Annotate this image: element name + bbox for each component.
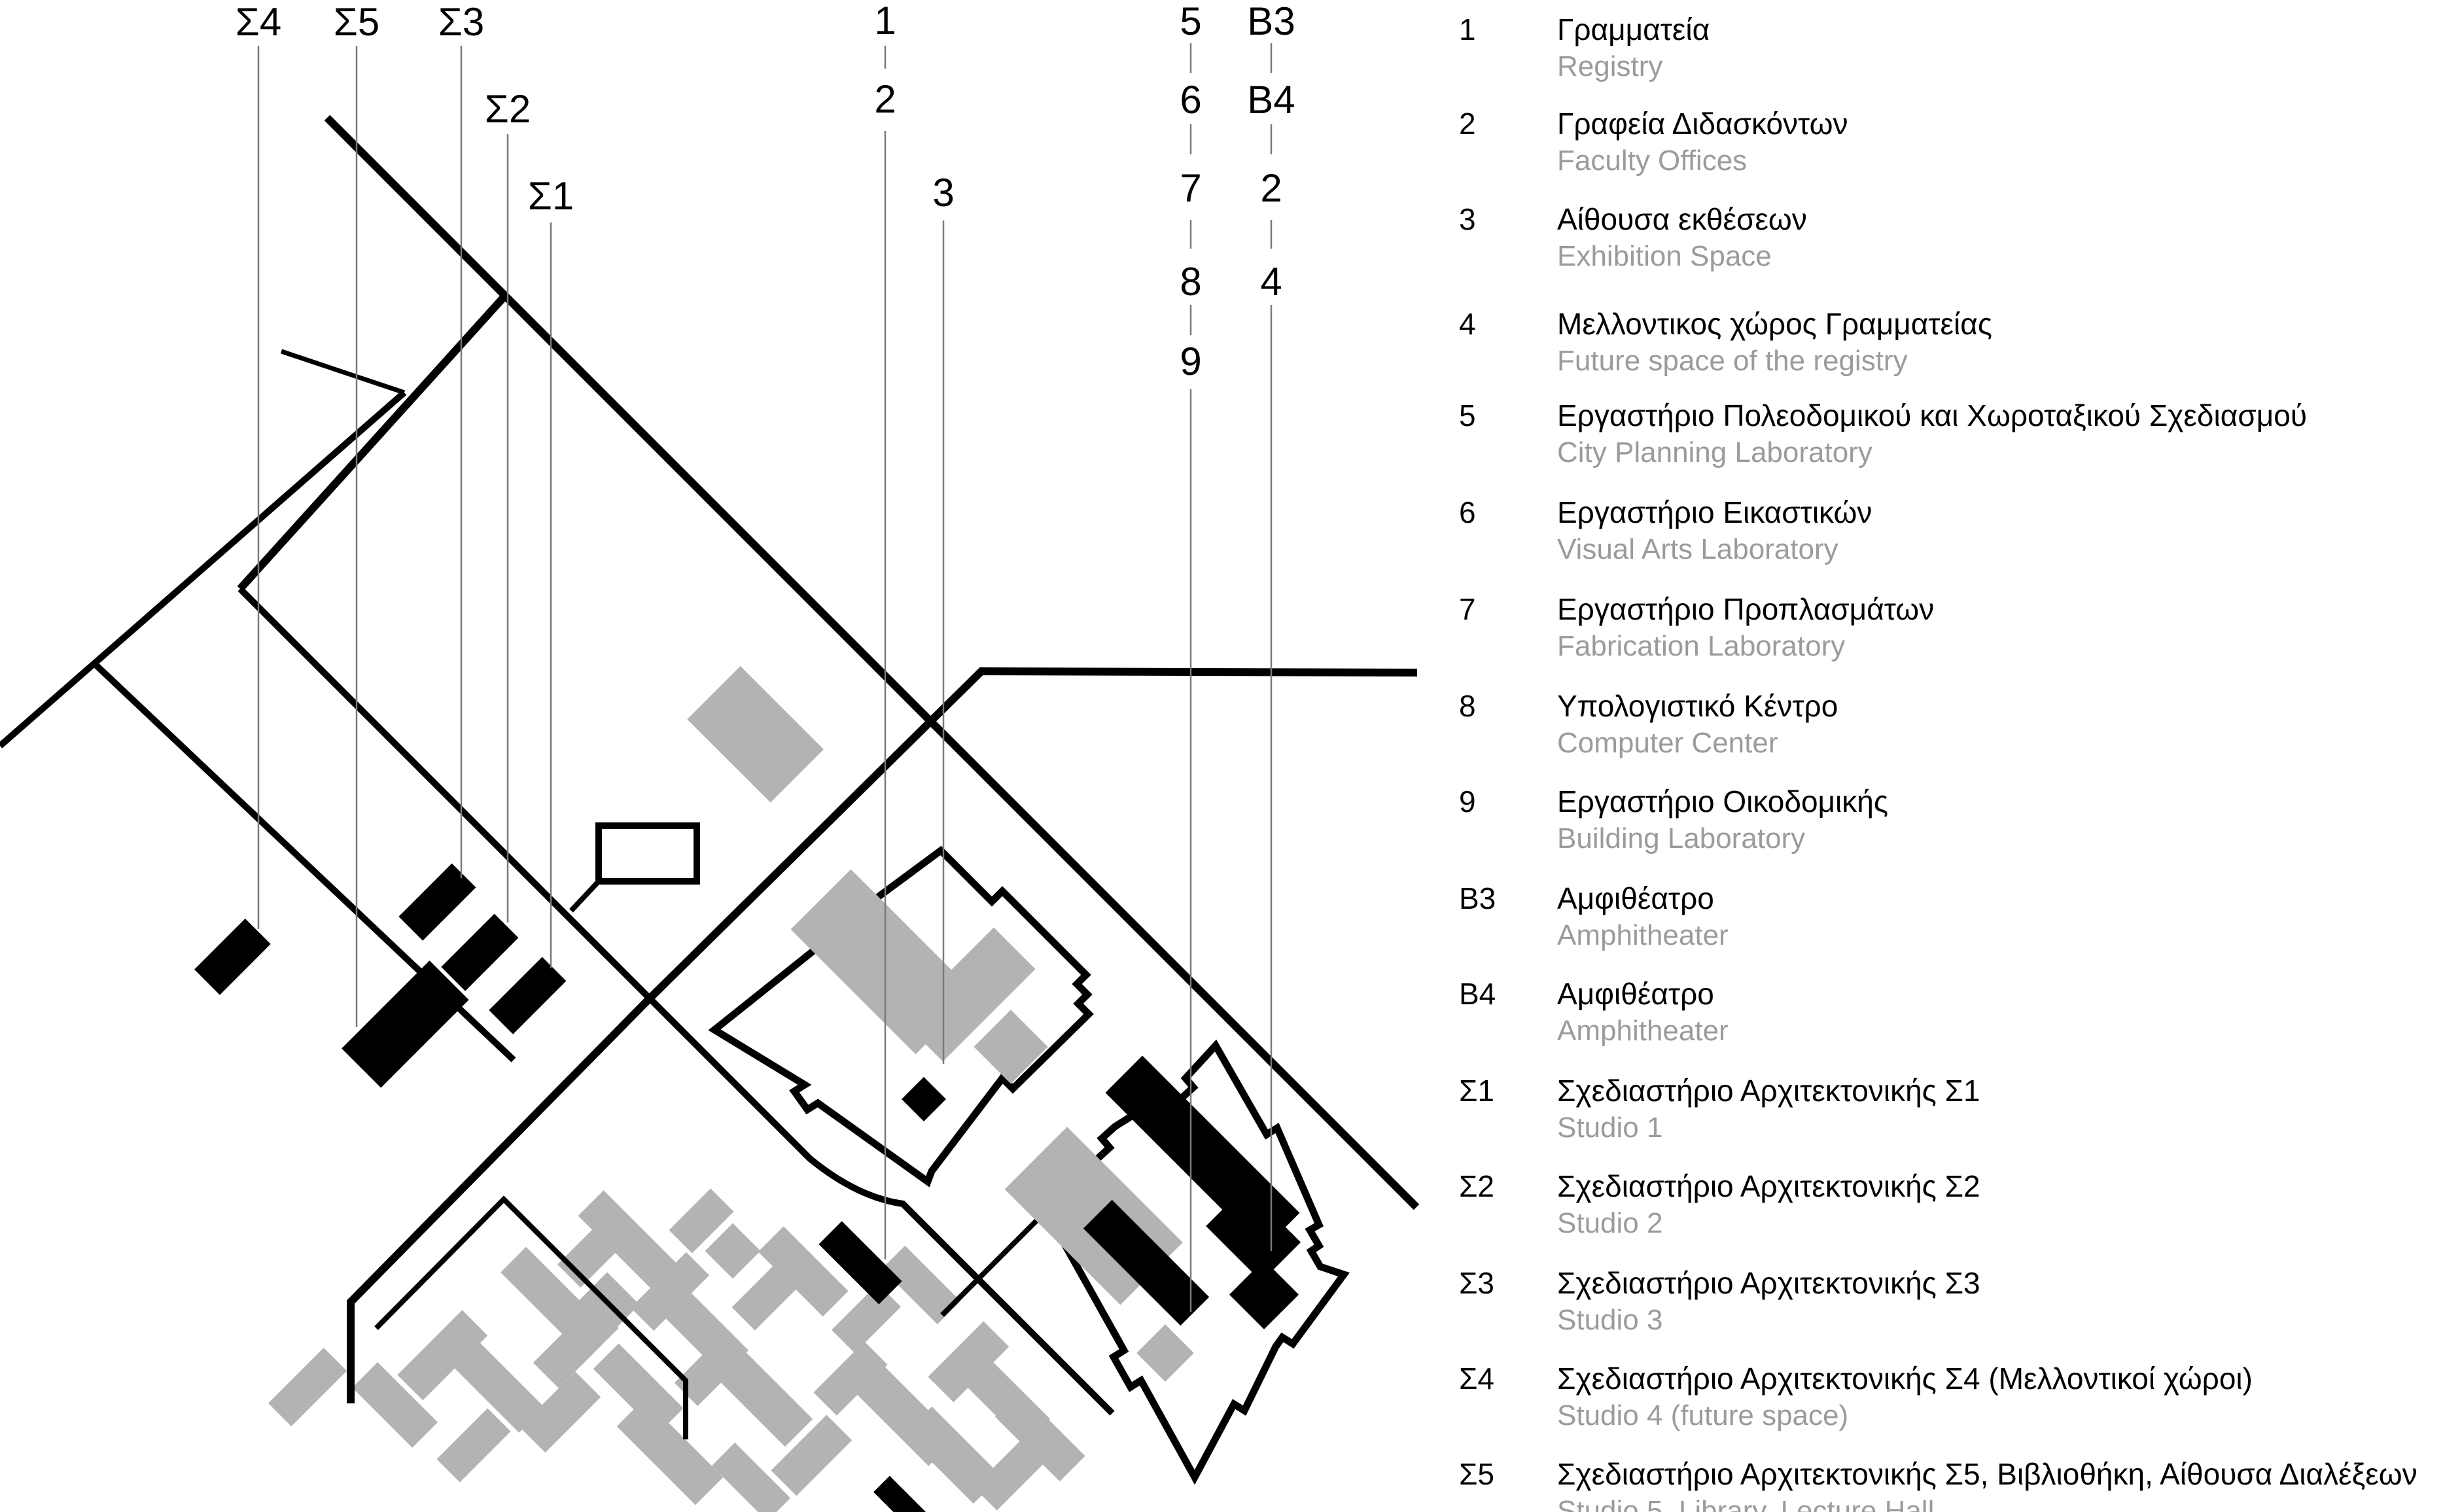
legend-number: 6 [1459,495,1557,530]
legend-item-8: 8 Υπολογιστικό ΚέντροComputer Center [1459,688,1838,760]
outlined-rect-building [599,826,697,881]
legend-english-label: Amphitheater [1557,919,1729,953]
legend-greek-label: Σχεδιαστήριο Αρχιτεκτονικής Σ1 [1557,1073,1980,1108]
legend-number: 1 [1459,12,1557,47]
legend-item-9: 9 Εργαστήριο ΟικοδομικήςBuilding Laborat… [1459,784,1888,856]
legend-item-7: 7 Εργαστήριο ΠροπλασμάτωνFabrication Lab… [1459,591,1934,663]
legend-english-label: Fabrication Laboratory [1557,629,1934,663]
legend-greek-label: Εργαστήριο Προπλασμάτων [1557,591,1934,627]
legend-number: Σ5 [1459,1456,1557,1492]
legend-item-s3: Σ3 Σχεδιαστήριο Αρχιτεκτονικής Σ3Studio … [1459,1265,1980,1337]
legend-item-5: 5 Εργαστήριο Πολεοδομικού και Χωροταξικο… [1459,398,2307,470]
legend-greek-label: Σχεδιαστήριο Αρχιτεκτονικής Σ2 [1557,1169,1980,1204]
legend-item-2: 2 Γραφεία ΔιδασκόντωνFaculty Offices [1459,106,1848,178]
map-label-sigma3: Σ3 [438,0,484,44]
legend-number: 2 [1459,106,1557,141]
legend-item-6: 6 Εργαστήριο ΕικαστικώνVisual Arts Labor… [1459,495,1872,567]
legend-item-4: 4 Μελλοντικος χώρος ΓραμματείαςFuture sp… [1459,306,1992,378]
map-label-b3: B3 [1247,0,1295,43]
legend-number: B4 [1459,976,1557,1011]
map-label-6: 6 [1180,78,1201,122]
studio-sigma2-footprint [441,914,518,991]
legend-greek-label: Υπολογιστικό Κέντρο [1557,688,1838,724]
legend-number: 8 [1459,688,1557,724]
legend: 1 ΓραμματείαRegistry 2 Γραφεία Διδασκόντ… [1459,0,2443,1512]
legend-english-label: Computer Center [1557,726,1838,760]
map-label-4: 4 [1260,260,1282,304]
legend-item-1: 1 ΓραμματείαRegistry [1459,12,1710,84]
legend-english-label: Visual Arts Laboratory [1557,533,1872,567]
legend-english-label: Faculty Offices [1557,144,1848,178]
legend-number: Σ1 [1459,1073,1557,1108]
legend-number: 3 [1459,202,1557,237]
building-footprint-gray [268,1348,347,1426]
map-label-9: 9 [1180,340,1201,383]
legend-greek-label: Γραφεία Διδασκόντων [1557,106,1848,141]
legend-item-b4: B4 ΑμφιθέατροAmphitheater [1459,976,1729,1048]
legend-greek-label: Εργαστήριο Οικοδομικής [1557,784,1888,819]
building-footprint-gray [436,1408,510,1482]
legend-english-label: Future space of the registry [1557,344,1992,378]
legend-greek-label: Αίθουσα εκθέσεων [1557,202,1807,237]
legend-number: 5 [1459,398,1557,433]
legend-english-label: Building Laboratory [1557,822,1888,856]
building-footprint-gray [687,666,824,803]
main-building [714,851,1089,1182]
map-label-8: 8 [1180,260,1201,304]
legend-item-3: 3 Αίθουσα εκθέσεωνExhibition Space [1459,202,1807,273]
legend-greek-label: Σχεδιαστήριο Αρχιτεκτονικής Σ3 [1557,1265,1980,1301]
legend-greek-label: Μελλοντικος χώρος Γραμματείας [1557,306,1992,342]
legend-item-s4: Σ4 Σχεδιαστήριο Αρχιτεκτονικής Σ4 (Μελλο… [1459,1361,2253,1433]
road-spur [281,351,404,393]
legend-greek-label: Αμφιθέατρο [1557,976,1729,1011]
map-label-1: 1 [874,0,896,43]
studio-sigma1-footprint [489,957,566,1034]
road-upper-branch [240,296,505,589]
map-label-sigma1: Σ1 [528,174,574,218]
legend-number: Σ4 [1459,1361,1557,1396]
legend-greek-label: Σχεδιαστήριο Αρχιτεκτονικής Σ5, Βιβλιοθή… [1557,1456,2417,1492]
building-footprint-gray [716,1350,813,1447]
legend-number: 7 [1459,591,1557,627]
studio-sigma4-footprint [194,919,271,995]
legend-english-label: Studio 2 [1557,1206,1980,1240]
legend-english-label: Studio 1 [1557,1111,1980,1145]
legend-english-label: Studio 3 [1557,1303,1980,1337]
legend-number: Σ3 [1459,1265,1557,1301]
legend-number: B3 [1459,881,1557,916]
map-label-b4: B4 [1247,78,1295,122]
legend-greek-label: Σχεδιαστήριο Αρχιτεκτονικής Σ4 (Μελλοντι… [1557,1361,2253,1396]
campus-map: Σ4 Σ5 Σ3 Σ2 Σ1 1 2 3 5 6 7 8 9 B3 B4 2 4 [0,0,1459,1512]
legend-english-label: Amphitheater [1557,1014,1729,1048]
legend-number: Σ2 [1459,1169,1557,1204]
studio-sigma3-footprint [398,864,476,941]
legend-english-label: City Planning Laboratory [1557,436,2307,470]
legend-number: 9 [1459,784,1557,819]
legend-english-label: Studio 4 (future space) [1557,1399,2253,1433]
legend-item-s5: Σ5 Σχεδιαστήριο Αρχιτεκτονικής Σ5, Βιβλι… [1459,1456,2417,1512]
site-plan-page: Σ4 Σ5 Σ3 Σ2 Σ1 1 2 3 5 6 7 8 9 B3 B4 2 4… [0,0,2443,1512]
studio-sigma5-footprint [342,960,468,1087]
map-label-3: 3 [932,171,954,215]
legend-greek-label: Εργαστήριο Πολεοδομικού και Χωροταξικού … [1557,398,2307,433]
map-label-7: 7 [1180,166,1201,210]
legend-greek-label: Εργαστήριο Εικαστικών [1557,495,1872,530]
legend-item-s1: Σ1 Σχεδιαστήριο Αρχιτεκτονικής Σ1Studio … [1459,1073,1980,1145]
legend-item-b3: B3 ΑμφιθέατροAmphitheater [1459,881,1729,953]
map-label-5: 5 [1180,0,1201,43]
legend-greek-label: Γραμματεία [1557,12,1710,47]
legend-number: 4 [1459,306,1557,342]
map-labels: Σ4 Σ5 Σ3 Σ2 Σ1 1 2 3 5 6 7 8 9 B3 B4 2 4 [236,0,1295,383]
legend-greek-label: Αμφιθέατρο [1557,881,1729,916]
map-label-sigma4: Σ4 [236,0,281,44]
building-footprint-black [873,1476,926,1512]
east-building [1005,1046,1344,1477]
map-label-sigma2: Σ2 [485,87,531,131]
legend-english-label: Studio 5, Library, Lecture Hall [1557,1494,2417,1512]
legend-item-s2: Σ2 Σχεδιαστήριο Αρχιτεκτονικής Σ2Studio … [1459,1169,1980,1240]
legend-english-label: Exhibition Space [1557,239,1807,273]
map-label-2b: 2 [1260,166,1282,210]
map-label-sigma5: Σ5 [334,0,379,44]
road-rect-connector [571,881,599,911]
legend-english-label: Registry [1557,50,1710,84]
map-label-2: 2 [874,77,896,121]
